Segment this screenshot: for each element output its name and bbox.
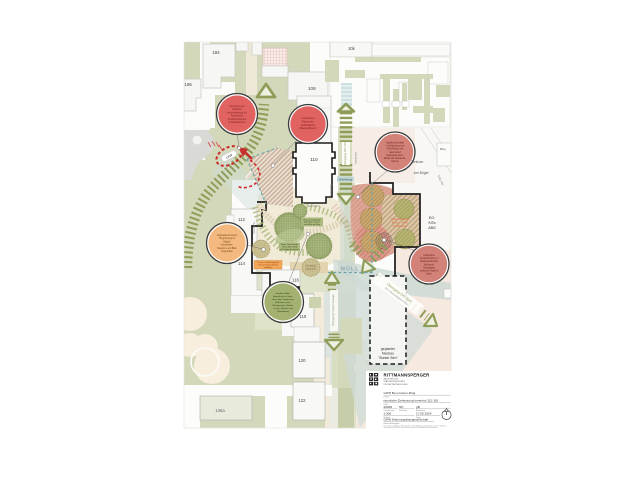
svg-text:KiTa-Marke: KiTa-Marke xyxy=(306,264,317,267)
svg-text:122: 122 xyxy=(299,398,307,403)
svg-text:Aufenthalt mit Vege-: Aufenthalt mit Vege- xyxy=(273,295,293,298)
svg-text:Raumkante: Raumkante xyxy=(308,205,321,208)
svg-text:tation (ugf. Verglasung,: tation (ugf. Verglasung, xyxy=(272,298,295,301)
svg-text:als Treffpunkt erhalten: als Treffpunkt erhalten xyxy=(280,248,299,251)
svg-text:Natur: Natur xyxy=(426,273,432,276)
svg-text:Bauherr Auftraggeber: Bauherr Auftraggeber xyxy=(384,422,401,425)
svg-text:(Rasenpflaster): (Rasenpflaster) xyxy=(299,126,317,130)
svg-text:Pflanzbeete): Pflanzbeete) xyxy=(277,310,290,313)
svg-text:Aufwertung: Aufwertung xyxy=(301,116,315,120)
svg-text:Neubau: Neubau xyxy=(382,352,394,356)
svg-text:MÜLL: MÜLL xyxy=(341,266,360,273)
svg-text:geplanter: geplanter xyxy=(381,347,396,351)
svg-text:29030: 29030 xyxy=(384,405,393,409)
svg-text:Vegetation: Vegetation xyxy=(221,250,233,253)
svg-text:Raumkante: Raumkante xyxy=(329,184,332,197)
svg-text:Übergang OG Ost: Übergang OG Ost xyxy=(343,141,347,166)
svg-text:116: 116 xyxy=(292,278,300,283)
svg-text:Westgrenzen, Wetter-: Westgrenzen, Wetter- xyxy=(272,304,293,307)
svg-text:136a: 136a xyxy=(215,408,225,413)
svg-text:10k: 10k xyxy=(348,46,356,51)
svg-text:Spielpunkt: Spielpunkt xyxy=(306,267,316,270)
svg-text:STADTENTWICKLUNG: STADTENTWICKLUNG xyxy=(384,380,406,383)
svg-text:120: 120 xyxy=(299,358,307,363)
svg-text:184: 184 xyxy=(212,50,220,55)
svg-text:attraktive Mitte:: attraktive Mitte: xyxy=(276,292,291,295)
svg-text:& Paketdienste: & Paketdienste xyxy=(229,121,246,124)
svg-text:Raumkante: Raumkante xyxy=(354,152,357,165)
svg-text:186: 186 xyxy=(185,82,193,87)
svg-text:118: 118 xyxy=(300,314,307,319)
svg-text:17.05.2024: 17.05.2024 xyxy=(416,412,432,416)
svg-text:ARCHITEKTUR: ARCHITEKTUR xyxy=(384,378,399,381)
svg-text:GWH Wohnungsbaugesellschaft: GWH Wohnungsbaugesellschaft xyxy=(384,418,429,422)
svg-text:GWH Ben-Gurion-Ring: GWH Ben-Gurion-Ring xyxy=(384,391,416,395)
svg-text:112: 112 xyxy=(238,217,246,222)
svg-text:108: 108 xyxy=(308,86,316,91)
svg-text:KiTa: KiTa xyxy=(429,221,436,225)
svg-text:im Alltag": im Alltag" xyxy=(264,266,273,269)
svg-text:räumliche Zielsetzung Innenhof: räumliche Zielsetzung Innenhof 112-116 xyxy=(384,398,439,402)
svg-text:gB: gB xyxy=(416,405,420,409)
svg-text:trale Mitte am Weg: trale Mitte am Weg xyxy=(304,223,320,226)
svg-text:Am Bügel: Am Bügel xyxy=(414,171,429,175)
svg-text:schutz, Wasser und: schutz, Wasser und xyxy=(273,307,293,310)
svg-text:1:500: 1:500 xyxy=(384,412,392,416)
svg-text:EG:: EG: xyxy=(429,216,435,220)
svg-text:Blühwiese nach: Blühwiese nach xyxy=(275,302,291,304)
svg-text:Zentrum: Zentrum xyxy=(411,160,424,164)
svg-text:110: 110 xyxy=(310,157,318,162)
svg-text:Freifläche: Freifläche xyxy=(393,224,408,228)
svg-text:außenfläche: außenfläche xyxy=(301,123,316,127)
svg-text:Pausende-: Pausende- xyxy=(302,119,315,123)
svg-text:bäume: bäume xyxy=(391,160,399,163)
svg-text:RITTMANNSPERGER: RITTMANNSPERGER xyxy=(384,373,431,378)
svg-text:114: 114 xyxy=(238,261,246,266)
svg-text:Zeichnung: Zeichnung xyxy=(399,410,407,412)
svg-text:Anlieferung: Anlieferung xyxy=(339,177,353,181)
svg-text:ABG: ABG xyxy=(428,226,436,230)
svg-text:"Bunter Ben": "Bunter Ben" xyxy=(378,356,398,360)
svg-text:Raumkante: Raumkante xyxy=(253,221,256,234)
svg-text:SH: SH xyxy=(399,405,403,409)
svg-text:Bürg.: Bürg. xyxy=(440,147,446,151)
svg-text:Übergang Treppenanlage: Übergang Treppenanlage xyxy=(331,294,335,326)
svg-text:PROJEKTENTWICKLUNG: PROJEKTENTWICKLUNG xyxy=(384,384,408,386)
